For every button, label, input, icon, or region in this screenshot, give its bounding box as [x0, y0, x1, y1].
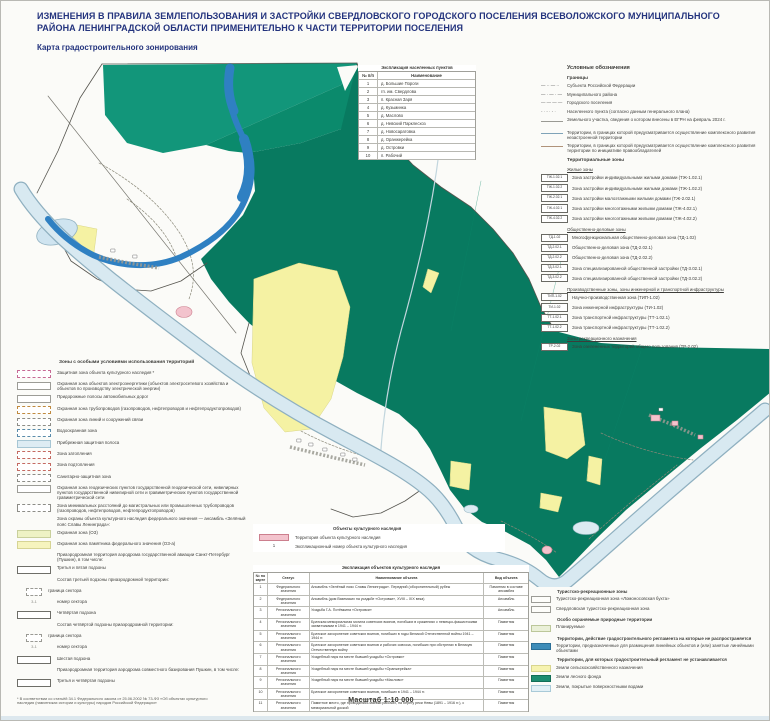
special-zone-label: Зона охраны объекта культурного наследия… — [57, 516, 247, 526]
zone-legend-item: ТИП-1.02 Научно-производственная зона (Т… — [541, 293, 767, 301]
legend-bottom-right: Туристско-рекреационные зоны Туристско-р… — [531, 587, 769, 692]
settlement-row: 4 д. Кузьминка — [359, 104, 475, 112]
heritage-row: 6 Регионального значения Братское захоро… — [254, 642, 528, 654]
heritage-name: Усадебный парк на месте бывшей усадьбы «… — [310, 666, 485, 677]
zone-code-badge: ТТ-1.02.2 — [541, 324, 568, 332]
zone-code-badge: ТИП-1.02 — [541, 293, 568, 301]
settlement-number: 7 — [359, 128, 378, 135]
heritage-kind: Памятник — [484, 700, 528, 711]
zone-legend-item: ТТ-1.02.1 Зона транспортной инфраструкту… — [541, 314, 767, 322]
settlement-number: 10 — [359, 152, 378, 159]
heritage-kind: Памятник — [484, 642, 528, 653]
no-reglament-territories-title: Территории, действие градостроительного … — [557, 636, 769, 641]
heritage-status: Федерального значения — [268, 584, 310, 595]
legend-item-label: Планируемые — [556, 624, 585, 629]
settlement-name: д. Невский Парклесхоз — [378, 120, 475, 127]
border-line-icon — [541, 92, 563, 99]
zone-label: Зона транспортной инфраструктуры (ТТ-1.0… — [572, 325, 767, 330]
zone-swatch-icon — [17, 474, 51, 482]
zone-label: Зона застройки многоэтажными жилыми дома… — [572, 216, 767, 221]
heritage-number: 7 — [254, 654, 268, 665]
border-legend-label: Территории, в границах которой предусмат… — [567, 130, 767, 140]
special-zone-item: Придорожные полосы автомобильных дорог — [17, 394, 247, 403]
zone-label: Зона специализированной общественной зас… — [572, 266, 767, 271]
zone-legend-item: ТД-1.02 Многофункциональная общественно-… — [541, 234, 767, 242]
zone-legend-item: ТД-2.02.1 Общественно-деловая зона (ТД-2… — [541, 244, 767, 252]
settlement-number: 8 — [359, 136, 378, 143]
settlement-number: 3 — [359, 96, 378, 103]
heritage-name: Усадьба Г.А. Потёмкина «Островки» — [310, 607, 485, 618]
special-zone-label: Зона затопления — [57, 451, 92, 456]
legend-swatch-icon — [531, 675, 551, 682]
settlement-name: д. Кузьминка — [378, 104, 475, 111]
zone-code-badge: ТД-1.02 — [541, 234, 568, 242]
legend-swatch-icon — [531, 625, 551, 632]
border-legend-item: Территории, в границах которой предусмат… — [541, 143, 767, 154]
zone-legend-item: ТД-3.02.2 Зона специализированной общест… — [541, 274, 767, 282]
industrial-group-title: Производственные зоны, зоны инженерной и… — [567, 287, 767, 292]
special-zone-label: Придорожные полосы автомобильных дорог — [57, 394, 148, 399]
zone-label: Зона специализированной общественной зас… — [572, 276, 767, 281]
special-zone-item: Охранная зона геодезических пунктов госу… — [17, 485, 247, 501]
special-zone-item: Четвёртая подзона — [17, 610, 247, 619]
col-number: № п/п — [359, 72, 378, 79]
legend-swatch-icon — [531, 665, 551, 672]
zones-section-title: Территориальные зоны — [567, 158, 767, 164]
zone-swatch-icon — [17, 463, 51, 471]
heritage-row: 1 Федерального значения Ансамбль «Зелёны… — [254, 584, 528, 596]
zone-swatch-icon — [17, 418, 51, 426]
special-zone-label: Охранная зона (ОЗ) — [57, 530, 98, 535]
zone-legend-item: ТЖ-1.02.1 Зона застройки индивидуальными… — [541, 174, 767, 182]
settlement-row: 1 д. Большие Пороги — [359, 80, 475, 88]
legend-item: Туристско-рекреационная зона «Ломоносовс… — [531, 596, 769, 604]
zone-legend-item: ТР-2.02 Зона озелененных территорий обще… — [541, 343, 767, 351]
border-line-icon — [541, 133, 563, 141]
special-zone-label: Состав третьей подзоны приаэродромной те… — [57, 577, 169, 582]
zone-code-badge: ТД-2.02.1 — [541, 244, 568, 252]
heritage-number: 2 — [254, 596, 268, 607]
heritage-kind: Памятник — [484, 619, 528, 630]
heritage-status: Федерального значения — [268, 596, 310, 607]
border-line-icon — [541, 121, 563, 129]
zone-swatch-icon — [17, 451, 51, 459]
legend-item: Территории, предназначенные для размещен… — [531, 643, 769, 654]
special-zone-item: Охранная зона объектов электроэнергетики… — [17, 381, 247, 391]
heritage-number: 4 — [254, 619, 268, 630]
legend-item: Земли сельскохозяйственного назначения — [531, 665, 769, 673]
special-zone-label: Прибрежная защитная полоса — [57, 440, 119, 445]
legend-item: Свердловская туристско-рекреационная зон… — [531, 606, 769, 614]
settlement-name: гп. им. Свердлова — [378, 88, 475, 95]
legend-item-label: Земли лесного фонда — [556, 674, 601, 679]
heritage-name: Ансамбль (дом Вяземских на усадьбе «Остр… — [310, 596, 485, 607]
zone-swatch-icon — [17, 530, 51, 538]
heritage-number: 3 — [254, 607, 268, 618]
border-legend-item: Населенного пункта (согласно данным гене… — [541, 109, 767, 116]
special-zone-item: Третья и пятая подзоны — [17, 565, 247, 574]
heritage-kind: Памятник — [484, 631, 528, 642]
heritage-legend-label: Экспликационный номер объекта культурног… — [295, 544, 407, 549]
zone-swatch-icon — [17, 566, 51, 574]
zone-label: Зона инженерной инфраструктуры (ТИ-1.02) — [572, 305, 767, 310]
zone-label: Зона застройки многоэтажными жилыми дома… — [572, 206, 767, 211]
heritage-legend-label: Территория объекта культурного наследия — [295, 535, 380, 540]
legend-item-label: Земли сельскохозяйственного назначения — [556, 665, 643, 670]
heritage-number: 10 — [254, 689, 268, 700]
upper-river-mouth — [229, 68, 234, 111]
page-subtitle: Карта градостроительного зонирования — [37, 43, 743, 52]
special-zone-item: номер сектора — [17, 599, 247, 608]
special-zone-label: Шестая подзона — [57, 656, 90, 661]
heritage-table: Экспликация объектов культурного наследи… — [253, 565, 529, 712]
zone-code-badge: ТД-3.02.2 — [541, 274, 568, 282]
legend-header: Условные обозначения — [567, 65, 767, 71]
zone-label: Зона озелененных территорий общего польз… — [572, 344, 767, 349]
special-zone-item: Охранная зона трубопроводов (газопроводо… — [17, 406, 247, 415]
heritage-kind: Ансамбль — [484, 596, 528, 607]
zone-code-badge: ТЖ-4.02.2 — [541, 215, 568, 223]
settlement-number: 9 — [359, 144, 378, 151]
zone-label: Научно-производственная зона (ТИП-1.02) — [572, 295, 767, 300]
zone-code-badge: ТЖ-1.02.1 — [541, 174, 568, 182]
legend-item: Земли лесного фонда — [531, 674, 769, 682]
footnote: * В соответствии со статьёй 34.1 Федерал… — [17, 697, 217, 707]
zone-label: Общественно-деловая зона (ТД-2.02.2) — [572, 255, 767, 260]
legend-swatch-icon — [531, 606, 551, 613]
residential-group-title: Жилые зоны — [567, 167, 767, 172]
zone-code-badge: ТИ-1.02 — [541, 303, 568, 311]
settlement-name: д. Оранжерейка — [378, 136, 475, 143]
settlement-number: 6 — [359, 120, 378, 127]
zone-code-badge: ТД-2.02.2 — [541, 254, 568, 262]
settlement-row: 5 д. Маслово — [359, 112, 475, 120]
heritage-status: Регионального значения — [268, 631, 310, 642]
special-zone-item: Зона затопления — [17, 451, 247, 460]
special-zone-label: Третья и пятая подзоны — [57, 565, 106, 570]
zoning-map-sheet: ИЗМЕНЕНИЯ В ПРАВИЛА ЗЕМЛЕПОЛЬЗОВАНИЯ И З… — [0, 0, 770, 721]
special-zone-label: граница сектора — [48, 633, 81, 638]
heritage-number: 8 — [254, 666, 268, 677]
heritage-swatch-icon — [259, 534, 289, 541]
heritage-kind: Памятник в составе ансамбля — [484, 584, 528, 595]
legend-swatch-icon — [531, 685, 551, 692]
special-zone-item: Зона подтопления — [17, 462, 247, 471]
settlement-row: 3 п. Красная Заря — [359, 96, 475, 104]
heritage-status: Регионального значения — [268, 619, 310, 630]
special-zone-label: Зона минимальных расстояний до магистрал… — [57, 503, 247, 513]
heritage-name: Ансамбль «Зелёный пояс Славы Ленинграда»… — [310, 584, 485, 595]
zone-swatch-icon — [17, 600, 51, 608]
special-zone-label: Третья и четвёртая подзоны — [57, 678, 115, 683]
settlement-name: п. Рабочий — [378, 152, 475, 159]
zone-code-badge: ТЖ-1.02.2 — [541, 184, 568, 192]
border-legend-label: Территории, в границах которой предусмат… — [567, 143, 767, 153]
zone-code-badge: ТТ-1.02.1 — [541, 314, 568, 322]
special-zone-item: Зона охраны объекта культурного наследия… — [17, 516, 247, 526]
settlement-number: 4 — [359, 104, 378, 111]
zone-legend-item: ТТ-1.02.2 Зона транспортной инфраструкту… — [541, 324, 767, 332]
special-zone-label: Приаэродромная территория аэродрома совм… — [57, 667, 239, 672]
heritage-name: Братская мемориальная могила советских в… — [310, 619, 485, 630]
special-zone-item: Защитная зона объекта культурного наслед… — [17, 370, 247, 379]
heritage-kind: Ансамбль — [484, 607, 528, 618]
title-block: ИЗМЕНЕНИЯ В ПРАВИЛА ЗЕМЛЕПОЛЬЗОВАНИЯ И З… — [37, 11, 743, 52]
heritage-legend: Объекты культурного наследия Территория … — [253, 524, 505, 552]
settlements-table: Экспликация населенных пунктов № п/п Наи… — [358, 65, 476, 160]
legend-item: Земли, покрытые поверхностными водами — [531, 684, 769, 692]
settlement-row: 9 д. Островки — [359, 144, 475, 152]
settlement-name: д. Островки — [378, 144, 475, 151]
border-line-icon — [541, 146, 563, 154]
border-legend-label: Субъекта Российской Федерации — [567, 83, 635, 88]
zone-swatch-icon — [17, 645, 51, 653]
zone-label: Общественно-деловая зона (ТД-2.02.1) — [572, 245, 767, 250]
zone-swatch-icon — [17, 504, 51, 512]
heritage-row: 9 Регионального значения Усадебный парк … — [254, 677, 528, 689]
heritage-status: Регионального значения — [268, 677, 310, 688]
col-object-name: Наименование объекта — [310, 573, 485, 584]
zone-swatch-icon — [17, 679, 51, 687]
heritage-number: 1 — [254, 584, 268, 595]
border-legend-label: Земельного участка, сведения о котором в… — [567, 117, 726, 122]
border-legend-label: Населенного пункта (согласно данным гене… — [567, 109, 690, 114]
heritage-kind: Памятник — [484, 689, 528, 700]
special-zone-item: Состав третьей подзоны приаэродромной те… — [17, 577, 247, 586]
tourist-zones-title: Туристско-рекреационные зоны — [557, 589, 769, 594]
border-legend-item: Субъекта Российской Федерации — [541, 83, 767, 90]
heritage-row: 8 Регионального значения Усадебный парк … — [254, 666, 528, 678]
special-zone-label: Охранная зона памятника федерального зна… — [57, 541, 175, 546]
special-zone-label: Приаэродромная территория аэродрома госу… — [57, 552, 247, 562]
heritage-name: Братское захоронение советских воинов, п… — [310, 631, 485, 642]
zone-legend-item: ТД-3.02.1 Зона специализированной общест… — [541, 264, 767, 272]
settlement-row: 7 д. Новосаратовка — [359, 128, 475, 136]
special-zone-label: Охранная зона линий и сооружений связи — [57, 417, 143, 422]
settlement-row: 8 д. Оранжерейка — [359, 136, 475, 144]
zone-label: Зона застройки индивидуальными жилыми до… — [572, 175, 767, 180]
legend-item-label: Земли, покрытые поверхностными водами — [556, 684, 643, 689]
settlements-table-caption: Экспликация населенных пунктов — [358, 65, 476, 70]
map-scale-label: Масштаб 1:10 000 — [291, 697, 471, 704]
special-zone-item: граница сектора — [17, 633, 247, 642]
heritage-row: 2 Федерального значения Ансамбль (дом Вя… — [254, 596, 528, 608]
zone-legend-item: ТИ-1.02 Зона инженерной инфраструктуры (… — [541, 303, 767, 311]
legend-left: Зоны с особыми условиями использования т… — [17, 360, 247, 706]
special-zone-item: Санитарно-защитная зона — [17, 474, 247, 483]
special-zone-item: Охранная зона линий и сооружений связи — [17, 417, 247, 426]
legend-swatch-icon — [531, 596, 551, 603]
zone-label: Зона транспортной инфраструктуры (ТТ-1.0… — [572, 315, 767, 320]
special-zone-item: Приаэродромная территория аэродрома совм… — [17, 667, 247, 676]
border-legend-label: Городского поселения — [567, 100, 612, 105]
heritage-number: 11 — [254, 700, 268, 711]
special-zone-label: граница сектора — [48, 588, 81, 593]
zone-code-badge: ТЖ-4.02.1 — [541, 204, 568, 212]
settlement-row: 10 п. Рабочий — [359, 152, 475, 160]
zone-legend-item: ТЖ-4.02.1 Зона застройки многоэтажными ж… — [541, 204, 767, 212]
special-zone-label: номер сектора — [57, 644, 87, 649]
legend-item: Планируемые — [531, 624, 769, 632]
zone-label: Многофункциональная общественно-деловая … — [572, 235, 767, 240]
heritage-status: Регионального значения — [268, 654, 310, 665]
heritage-name: Усадебный парк на месте бывшей усадьбы «… — [310, 654, 485, 665]
special-zone-label: Состав четвёртой подзоны приаэродромной … — [57, 622, 174, 627]
heritage-number: 5 — [254, 631, 268, 642]
borders-section-title: Границы — [567, 76, 767, 82]
heritage-legend-item: Территория объекта культурного наследия — [259, 534, 505, 541]
settlement-row: 2 гп. им. Свердлова — [359, 88, 475, 96]
border-line-icon — [541, 100, 563, 107]
heritage-row: 4 Регионального значения Братская мемори… — [254, 619, 528, 631]
zone-legend-item: ТЖ-2.02.1 Зона застройки малоэтажными жи… — [541, 194, 767, 202]
business-group-title: Общественно-деловые зоны — [567, 227, 767, 232]
border-legend-item: Земельного участка, сведения о котором в… — [541, 117, 767, 129]
settlement-number: 1 — [359, 80, 378, 87]
border-legend-label: Муниципального района — [567, 92, 617, 97]
border-line-icon — [541, 109, 563, 116]
special-zone-item: Шестая подзона — [17, 656, 247, 665]
zone-swatch-icon — [17, 656, 51, 664]
special-zone-label: Охранная зона трубопроводов (газопроводо… — [57, 406, 241, 411]
zone-legend-item: ТД-2.02.2 Общественно-деловая зона (ТД-2… — [541, 254, 767, 262]
col-map-number: № по карте — [254, 573, 268, 584]
page-title: ИЗМЕНЕНИЯ В ПРАВИЛА ЗЕМЛЕПОЛЬЗОВАНИЯ И З… — [37, 11, 743, 34]
heritage-row: 5 Регионального значения Братское захоро… — [254, 631, 528, 643]
settlement-name: п. Красная Заря — [378, 96, 475, 103]
special-zones-header: Зоны с особыми условиями использования т… — [59, 360, 247, 366]
zone-label: Зона застройки малоэтажными жилыми домам… — [572, 196, 767, 201]
heritage-table-caption: Экспликация объектов культурного наследи… — [253, 565, 529, 570]
upper-river-wide — [242, 139, 249, 197]
zone-code-badge: ТД-3.02.1 — [541, 264, 568, 272]
special-zone-label: Охранная зона геодезических пунктов госу… — [57, 485, 247, 501]
heritage-number: 9 — [254, 677, 268, 688]
zone-swatch-icon — [17, 440, 51, 448]
col-object-kind: Вид объекта — [484, 573, 528, 584]
heritage-name: Братское захоронение советских воинов и … — [310, 642, 485, 653]
heritage-kind: Памятник — [484, 677, 528, 688]
heritage-row: 7 Регионального значения Усадебный парк … — [254, 654, 528, 666]
no-reglament-set-title: Территории, для которых градостроительны… — [557, 657, 769, 662]
zone-swatch-icon — [26, 588, 42, 596]
heritage-status: Регионального значения — [268, 642, 310, 653]
legend-swatch-icon — [531, 643, 551, 650]
heritage-kind: Памятник — [484, 654, 528, 665]
protected-areas-title: Особо охраняемые природные территории — [557, 617, 769, 622]
border-legend-item: Территории, в границах которой предусмат… — [541, 130, 767, 141]
scan-edge — [1, 716, 769, 720]
heritage-row: 3 Регионального значения Усадьба Г.А. По… — [254, 607, 528, 619]
zone-legend-item: ТЖ-4.02.2 Зона застройки многоэтажными ж… — [541, 215, 767, 223]
special-zone-label: Зона подтопления — [57, 462, 95, 467]
special-zone-label: номер сектора — [57, 599, 87, 604]
special-zone-label: Водоохранная зона — [57, 428, 97, 433]
special-zone-item: Состав четвёртой подзоны приаэродромной … — [17, 622, 247, 631]
special-zone-label: Охранная зона объектов электроэнергетики… — [57, 381, 247, 391]
zone-swatch-icon — [17, 406, 51, 414]
settlement-name: д. Новосаратовка — [378, 128, 475, 135]
settlement-name: д. Маслово — [378, 112, 475, 119]
zone-swatch-icon — [17, 395, 51, 403]
settlement-name: д. Большие Пороги — [378, 80, 475, 87]
settlements-table-header: № п/п Наименование — [359, 72, 475, 80]
zone-swatch-icon — [17, 611, 51, 619]
special-zone-item: Приаэродромная территория аэродрома госу… — [17, 552, 247, 562]
zone-swatch-icon — [17, 429, 51, 437]
heritage-number: 6 — [254, 642, 268, 653]
legend-item-label: Туристско-рекреационная зона «Ломоносовс… — [556, 596, 670, 601]
pond-small — [464, 505, 478, 513]
special-zone-label: Санитарно-защитная зона — [57, 474, 111, 479]
zone-label: Зона застройки индивидуальными жилыми до… — [572, 186, 767, 191]
zone-swatch-icon — [17, 370, 51, 378]
col-status: Статус — [268, 573, 310, 584]
special-zone-item: граница сектора — [17, 588, 247, 597]
special-zone-item: Третья и четвёртая подзоны — [17, 678, 247, 687]
zone-swatch-icon — [26, 634, 42, 642]
special-zone-item: Водоохранная зона — [17, 428, 247, 437]
zone-swatch-icon — [17, 485, 51, 493]
heritage-status: Регионального значения — [268, 607, 310, 618]
special-zone-item: Прибрежная защитная полоса — [17, 440, 247, 449]
border-legend-item: Муниципального района — [541, 92, 767, 99]
special-zone-label: Четвёртая подзона — [57, 610, 96, 615]
zone-swatch-icon — [17, 541, 51, 549]
special-zone-item: Охранная зона (ОЗ) — [17, 530, 247, 539]
zone-legend-item: ТЖ-1.02.2 Зона застройки индивидуальными… — [541, 184, 767, 192]
heritage-swatch-icon — [259, 543, 289, 550]
pond — [573, 522, 599, 535]
heritage-kind: Памятник — [484, 666, 528, 677]
special-zone-item: номер сектора — [17, 644, 247, 653]
settlement-number: 2 — [359, 88, 378, 95]
heritage-status: Регионального значения — [268, 666, 310, 677]
heritage-legend-item: Экспликационный номер объекта культурног… — [259, 543, 505, 550]
heritage-name: Усадебный парк на месте бывшей усадьбы «… — [310, 677, 485, 688]
recreation-group-title: Зоны рекреационного назначения — [567, 336, 767, 341]
legend-item-label: Свердловская туристско-рекреационная зон… — [556, 606, 649, 611]
legend-item-label: Территории, предназначенные для размещен… — [556, 643, 769, 654]
heritage-table-header: № по карте Статус Наименование объекта В… — [254, 573, 528, 585]
border-legend-item: Городского поселения — [541, 100, 767, 107]
settlement-number: 5 — [359, 112, 378, 119]
heritage-legend-title: Объекты культурного наследия — [333, 526, 505, 531]
settlement-row: 6 д. Невский Парклесхоз — [359, 120, 475, 128]
zone-swatch-icon — [17, 382, 51, 390]
special-zone-label: Защитная зона объекта культурного наслед… — [57, 370, 154, 375]
legend-right: Условные обозначения Границы Субъекта Ро… — [541, 65, 767, 351]
special-zone-item: Зона минимальных расстояний до магистрал… — [17, 503, 247, 513]
col-name: Наименование — [378, 72, 475, 79]
special-zone-item: Охранная зона памятника федерального зна… — [17, 541, 247, 550]
zone-code-badge: ТР-2.02 — [541, 343, 568, 351]
zone-code-badge: ТЖ-2.02.1 — [541, 194, 568, 202]
border-line-icon — [541, 83, 563, 90]
